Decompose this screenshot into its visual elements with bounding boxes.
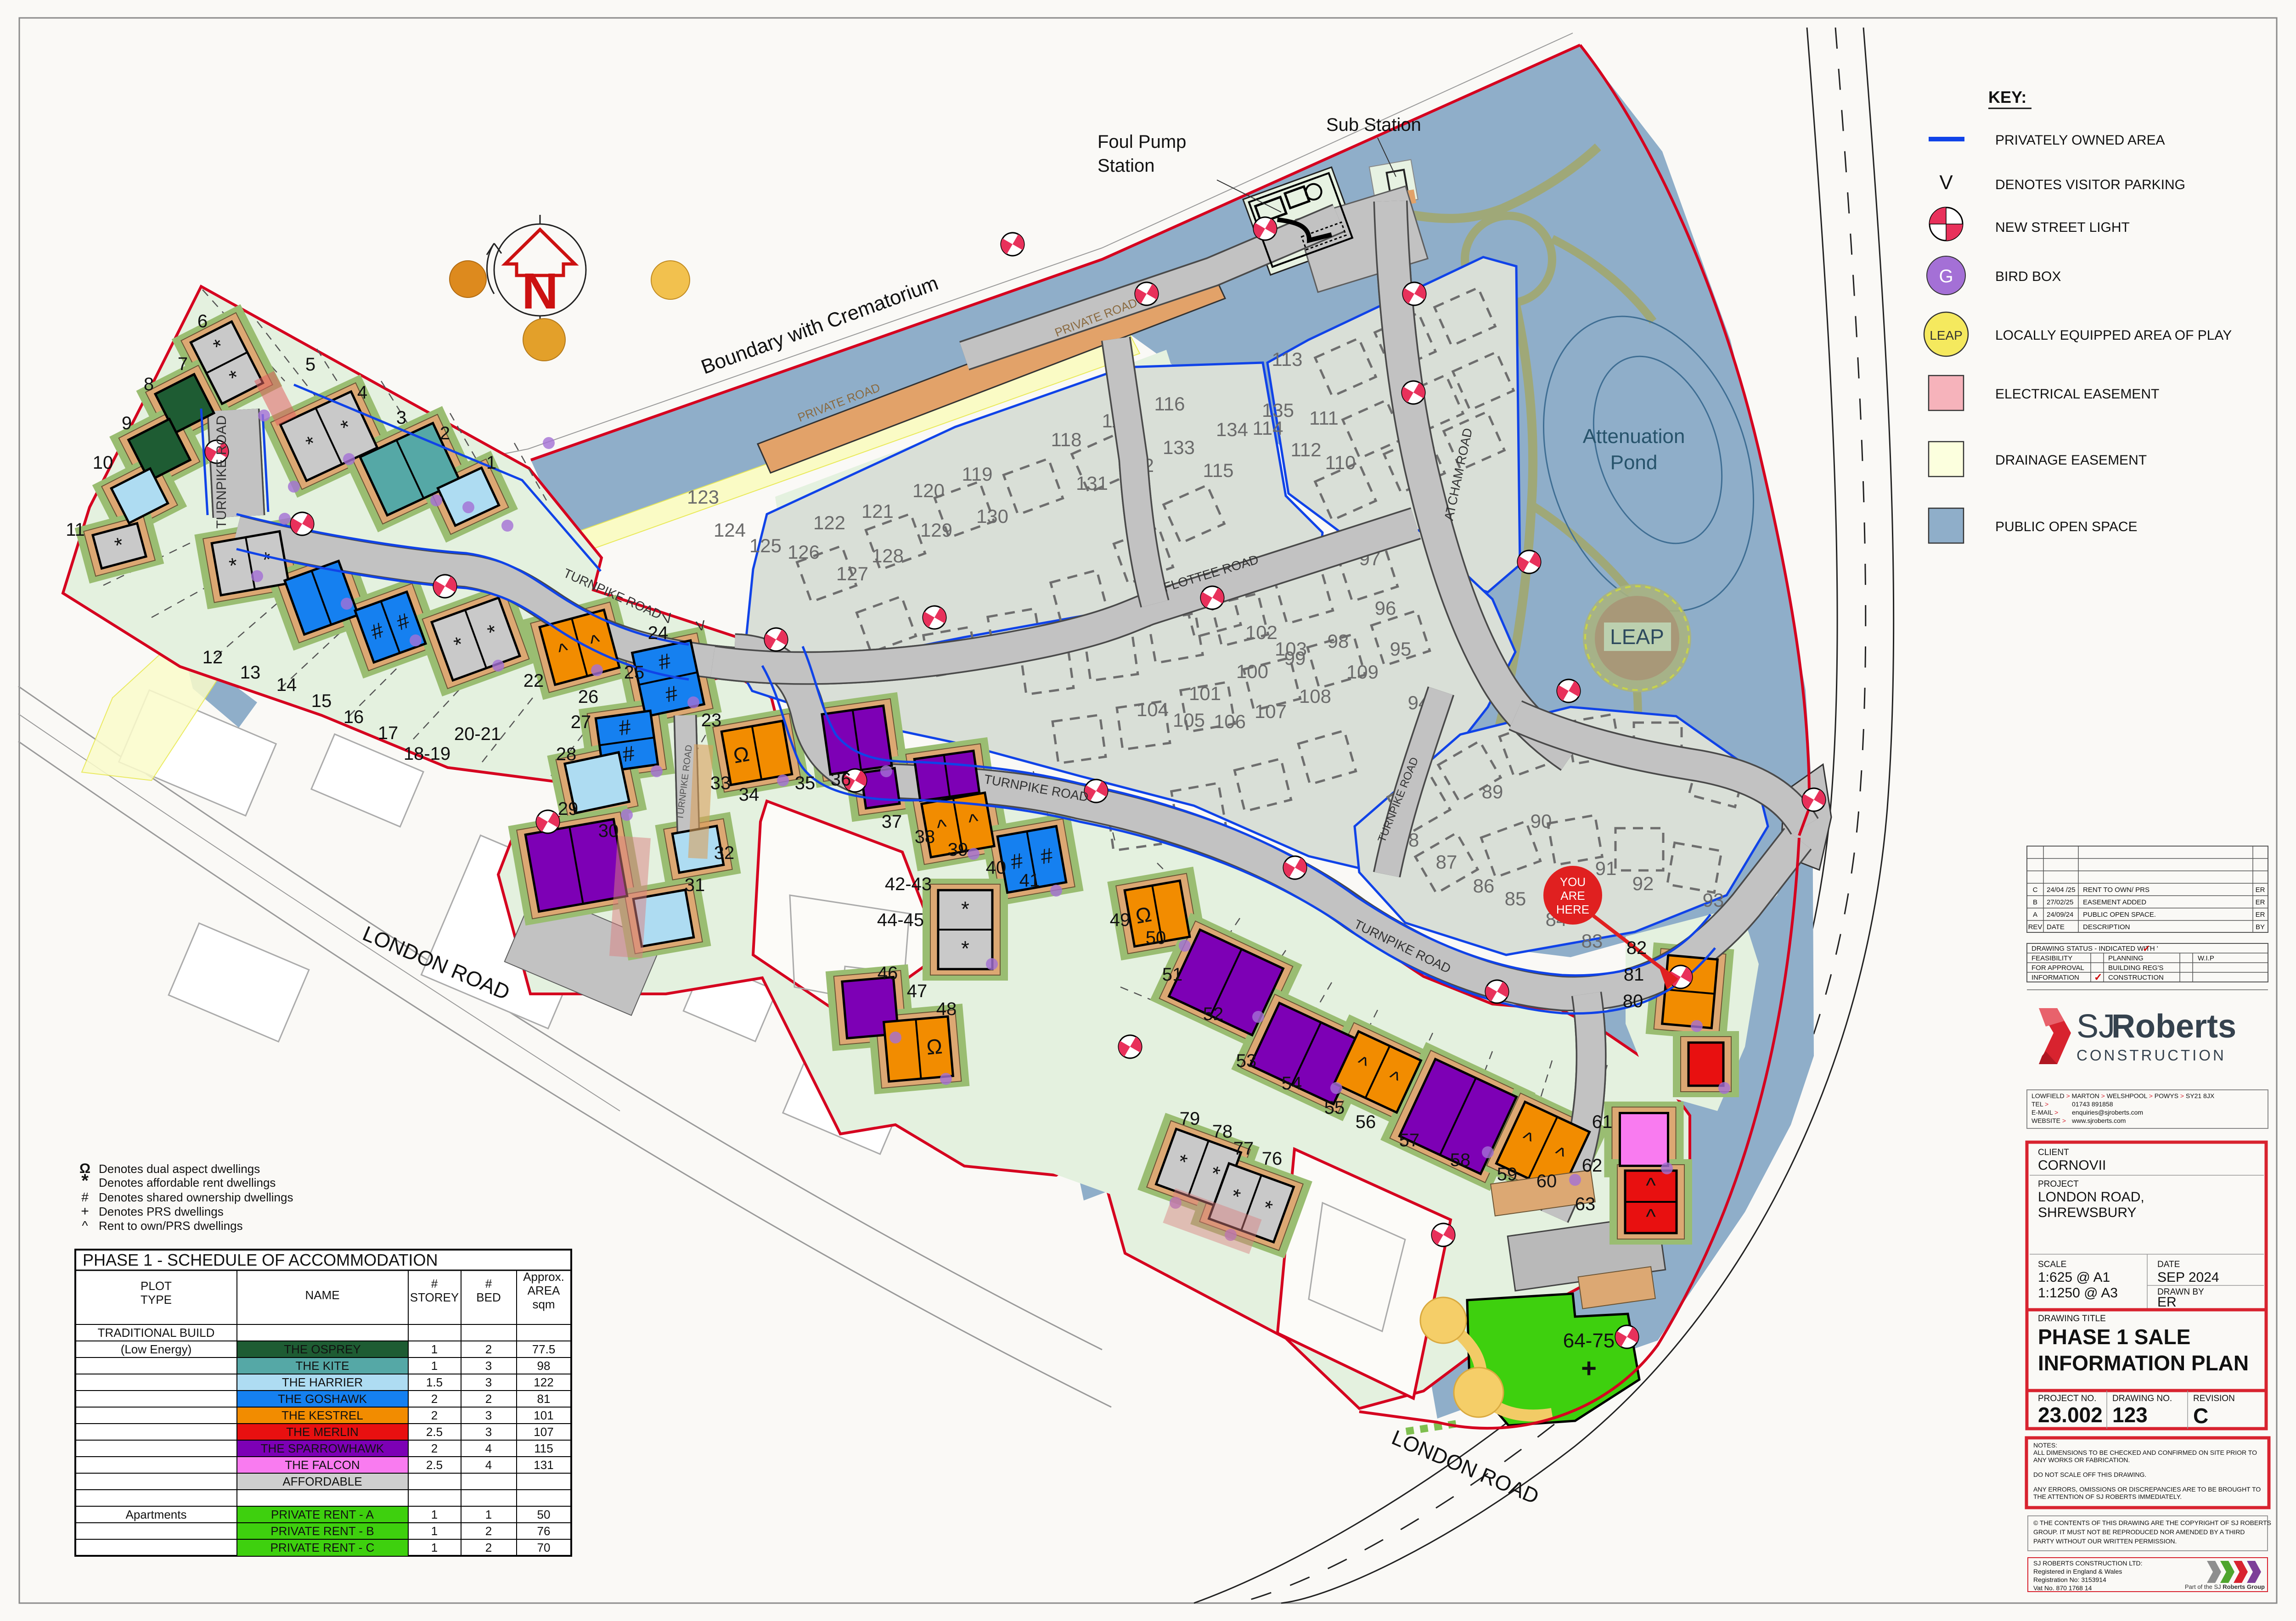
svg-text:enquiries@sjroberts.com: enquiries@sjroberts.com [2072,1109,2143,1116]
svg-text:50: 50 [537,1508,551,1521]
svg-text:01743 891858: 01743 891858 [2072,1100,2113,1108]
svg-text:9: 9 [122,413,132,433]
svg-text:47: 47 [907,981,928,1001]
svg-text:PRIVATE RENT - C: PRIVATE RENT - C [270,1541,375,1554]
svg-text:104: 104 [1137,699,1169,720]
svg-text:TEL >: TEL > [2032,1100,2048,1108]
svg-text:*: * [961,937,969,960]
svg-text:THE HARRIER: THE HARRIER [282,1375,363,1389]
svg-text:LOCALLY EQUIPPED AREA OF PLAY: LOCALLY EQUIPPED AREA OF PLAY [1995,328,2232,343]
svg-text:130: 130 [976,505,1008,527]
svg-text:ER: ER [2256,898,2265,906]
svg-text:102: 102 [1245,622,1277,643]
svg-text:^: ^ [1646,1173,1656,1197]
svg-text:8: 8 [144,374,154,394]
svg-text:3: 3 [396,408,406,428]
svg-text:Apartments: Apartments [126,1508,187,1521]
svg-text:EASEMENT ADDED: EASEMENT ADDED [2083,898,2146,906]
svg-text:AFFORDABLE: AFFORDABLE [282,1475,362,1488]
svg-text:2: 2 [485,1392,492,1406]
svg-text:NOTES:: NOTES: [2033,1442,2057,1449]
svg-text:2: 2 [485,1342,492,1356]
svg-text:124: 124 [714,519,746,541]
svg-text:CLIENT: CLIENT [2038,1148,2069,1157]
svg-text:24/09/24: 24/09/24 [2047,911,2073,919]
svg-text:REVISION: REVISION [2193,1394,2235,1403]
svg-text:Denotes dual aspect dwellings: Denotes dual aspect dwellings [99,1162,260,1176]
svg-text:PROJECT: PROJECT [2038,1179,2079,1189]
svg-text:23: 23 [701,710,722,730]
svg-text:RENT TO OWN/ PRS: RENT TO OWN/ PRS [2083,886,2150,894]
svg-text:Registered in England & Wales: Registered in England & Wales [2033,1568,2122,1575]
svg-text:70: 70 [537,1541,551,1554]
svg-text:22: 22 [523,671,544,691]
svg-text:52: 52 [1203,1004,1224,1024]
svg-text:109: 109 [1346,661,1379,683]
svg-text:92: 92 [1632,873,1654,894]
svg-text:© THE CONTENTS OF THIS DRAWING: © THE CONTENTS OF THIS DRAWING ARE THE C… [2033,1519,2271,1526]
svg-text:DENOTES VISITOR PARKING: DENOTES VISITOR PARKING [1995,177,2185,192]
svg-text:THE MERLIN: THE MERLIN [286,1425,358,1439]
svg-text:122: 122 [534,1375,553,1389]
svg-text:82: 82 [1626,938,1647,958]
svg-text:90: 90 [1531,810,1552,832]
svg-text:101: 101 [534,1408,553,1422]
svg-text:INFORMATION PLAN: INFORMATION PLAN [2038,1351,2249,1375]
svg-text:4: 4 [485,1442,492,1455]
svg-text:17: 17 [378,723,399,743]
svg-text:76: 76 [537,1524,551,1538]
svg-text:14: 14 [276,675,297,695]
svg-text:2.5: 2.5 [426,1425,443,1439]
svg-text:101: 101 [1189,683,1221,704]
svg-text:33: 33 [710,773,731,793]
svg-text:HERE: HERE [1556,903,1589,916]
svg-text:PLANNING: PLANNING [2108,954,2144,962]
svg-text:57: 57 [1399,1130,1420,1150]
svg-text:ANY WORKS OR FABRICATION.: ANY WORKS OR FABRICATION. [2033,1456,2130,1464]
svg-text:BIRD BOX: BIRD BOX [1995,269,2061,284]
svg-text:PARTY WITHOUT OUR WRITTEN PERM: PARTY WITHOUT OUR WRITTEN PERMISSION. [2033,1537,2177,1545]
svg-text:23.002: 23.002 [2038,1403,2103,1427]
svg-text:51: 51 [1162,965,1183,985]
svg-text:113: 113 [1272,348,1303,370]
svg-text:#: # [81,1190,89,1204]
svg-text:ANY ERRORS, OMISSIONS OR DISCR: ANY ERRORS, OMISSIONS OR DISCREPANCIES A… [2033,1486,2261,1493]
svg-text:77: 77 [1233,1139,1254,1159]
svg-text:24: 24 [648,623,669,643]
svg-text:95: 95 [1390,638,1412,660]
svg-text:110: 110 [1325,452,1356,473]
svg-text:PUBLIC OPEN SPACE: PUBLIC OPEN SPACE [1995,519,2138,534]
svg-text:Approx.: Approx. [523,1270,564,1284]
svg-text:55: 55 [1324,1098,1345,1118]
svg-text:129: 129 [920,519,952,541]
svg-text:^: ^ [1646,1205,1656,1228]
svg-text:LOWFIELD > MARTON > WELSHPOOL: LOWFIELD > MARTON > WELSHPOOL > POWYS > … [2032,1092,2215,1099]
svg-text:20-21: 20-21 [454,724,501,744]
svg-text:Attenuation: Attenuation [1583,425,1685,448]
svg-text:1: 1 [431,1524,438,1538]
svg-text:DESCRIPTION: DESCRIPTION [2083,923,2130,931]
svg-text:Ω: Ω [925,1034,943,1060]
svg-text:ARE: ARE [1560,889,1585,903]
svg-text:Roberts: Roberts [2111,1008,2236,1045]
svg-text:SHREWSBURY: SHREWSBURY [2038,1205,2136,1220]
svg-text:PRIVATE RENT - B: PRIVATE RENT - B [270,1524,374,1538]
svg-text:111: 111 [1309,407,1339,429]
svg-text:123: 123 [687,486,719,508]
svg-text:50: 50 [1146,928,1166,948]
svg-text:98: 98 [1328,630,1349,652]
svg-text:TURNPIKE ROAD: TURNPIKE ROAD [214,415,229,529]
svg-text:125: 125 [749,535,782,556]
svg-text:87: 87 [1436,851,1458,873]
svg-text:131: 131 [534,1458,553,1472]
svg-text:127: 127 [836,563,868,584]
svg-text:LEAP: LEAP [1610,625,1664,649]
svg-text:3: 3 [485,1425,492,1439]
svg-text:✓: ✓ [2143,944,2150,954]
svg-text:2: 2 [440,423,450,443]
svg-text:107: 107 [534,1425,553,1439]
svg-text:C: C [2193,1404,2208,1428]
svg-text:+: + [81,1204,89,1219]
svg-text:3: 3 [485,1359,492,1373]
svg-text:10: 10 [93,453,113,473]
svg-text:48: 48 [936,999,957,1019]
svg-text:85: 85 [1505,888,1526,909]
svg-text:15: 15 [311,691,332,711]
svg-text:60: 60 [1536,1171,1557,1191]
svg-text:2.5: 2.5 [426,1458,443,1472]
svg-text:108: 108 [1299,685,1331,707]
svg-text:53: 53 [1236,1051,1257,1071]
svg-text:123: 123 [2112,1403,2148,1427]
svg-text:107: 107 [1255,701,1287,722]
svg-text:ALL DIMENSIONS TO BE CHECKED A: ALL DIMENSIONS TO BE CHECKED AND CONFIRM… [2033,1449,2257,1456]
svg-text:121: 121 [861,500,894,522]
svg-text:1: 1 [431,1541,438,1554]
svg-text:STOREY: STOREY [410,1290,459,1304]
svg-text:35: 35 [795,773,816,793]
svg-text:PHASE 1 SALE: PHASE 1 SALE [2038,1325,2190,1349]
svg-text:1: 1 [486,453,496,473]
svg-text:2: 2 [431,1442,438,1455]
svg-text:PHASE 1 - SCHEDULE OF ACCOMMOD: PHASE 1 - SCHEDULE OF ACCOMMODATION [83,1251,438,1269]
svg-text:2: 2 [485,1524,492,1538]
svg-text:Denotes PRS dwellings: Denotes PRS dwellings [99,1205,224,1218]
svg-text:SJ ROBERTS CONSTRUCTION LTD:: SJ ROBERTS CONSTRUCTION LTD: [2033,1559,2143,1567]
svg-text:115: 115 [534,1442,553,1455]
svg-text:1: 1 [485,1508,492,1521]
svg-text:DRAWING TITLE: DRAWING TITLE [2038,1314,2106,1324]
svg-text:#: # [431,1277,438,1290]
svg-text:Pond: Pond [1610,451,1658,474]
svg-text:GROUP. IT MUST NOT BE REPRODUC: GROUP. IT MUST NOT BE REPRODUCED NOR AME… [2033,1528,2245,1536]
svg-text:+: + [1581,1353,1597,1383]
svg-text:BY: BY [2256,923,2265,931]
svg-text:DO NOT SCALE OFF THIS DRAWING.: DO NOT SCALE OFF THIS DRAWING. [2033,1471,2146,1478]
svg-text:CORNOVII: CORNOVII [2038,1158,2106,1173]
svg-text:77.5: 77.5 [532,1342,556,1356]
svg-text:SJ: SJ [2077,1008,2115,1045]
svg-text:INFORMATION: INFORMATION [2032,974,2079,982]
svg-text:FEASIBILITY: FEASIBILITY [2032,954,2072,962]
svg-text:131: 131 [1076,472,1108,494]
svg-text:^: ^ [82,1218,88,1233]
svg-text:Foul Pump: Foul Pump [1097,132,1186,152]
svg-text:91: 91 [1595,858,1617,879]
svg-text:39: 39 [948,840,968,860]
svg-text:40: 40 [986,858,1007,878]
svg-text:7: 7 [178,354,188,374]
svg-text:Registration No: 3153914: Registration No: 3153914 [2033,1576,2106,1583]
svg-text:2: 2 [431,1392,438,1406]
svg-text:THE OSPREY: THE OSPREY [284,1342,361,1356]
svg-text:81: 81 [1624,965,1644,985]
svg-text:6: 6 [197,311,208,331]
svg-text:49: 49 [1110,910,1131,930]
svg-text:16: 16 [343,707,364,727]
svg-text:THE GOSHAWK: THE GOSHAWK [278,1392,367,1406]
svg-text:118: 118 [1051,429,1082,450]
svg-text:Denotes shared ownership dwell: Denotes shared ownership dwellings [99,1190,293,1204]
svg-text:ER: ER [2256,886,2265,894]
svg-text:119: 119 [962,463,993,485]
svg-text:63: 63 [1575,1194,1596,1214]
svg-text:24/04 /25: 24/04 /25 [2047,886,2076,894]
svg-text:64-75: 64-75 [1563,1329,1615,1352]
svg-text:LEAP: LEAP [1930,328,1963,342]
svg-text:G: G [1939,266,1953,286]
svg-text:DRAWING STATUS - INDICATED WIT: DRAWING STATUS - INDICATED WITH ' [2032,945,2158,953]
svg-text:*: * [961,897,969,921]
svg-text:THE ATTENTION OF SJ ROBERTS IM: THE ATTENTION OF SJ ROBERTS IMMEDIATELY. [2033,1493,2182,1500]
svg-text:SEP 2024: SEP 2024 [2157,1270,2219,1285]
svg-text:44-45: 44-45 [877,910,924,930]
svg-text:YOU: YOU [1560,875,1586,889]
svg-text:106: 106 [1214,711,1246,732]
svg-text:120: 120 [912,480,945,501]
svg-text:ER: ER [2256,911,2265,919]
svg-text:Vat No. 870 1768 14: Vat No. 870 1768 14 [2033,1584,2092,1592]
svg-text:134: 134 [1216,419,1248,440]
svg-text:96: 96 [1375,597,1396,619]
svg-text:81: 81 [537,1392,551,1406]
svg-text:WEBSITE >: WEBSITE > [2032,1117,2066,1124]
svg-text:46: 46 [878,963,898,983]
svg-text:PROJECT NO.: PROJECT NO. [2038,1394,2096,1403]
svg-text:ELECTRICAL EASEMENT: ELECTRICAL EASEMENT [1995,387,2159,402]
svg-text:38: 38 [915,827,935,847]
svg-text:CONSTRUCTION: CONSTRUCTION [2108,974,2164,982]
svg-text:2: 2 [431,1408,438,1422]
svg-text:98: 98 [537,1359,551,1373]
svg-text:36: 36 [831,769,851,790]
svg-text:61: 61 [1592,1112,1613,1132]
svg-text:115: 115 [1203,460,1234,481]
svg-text:#: # [485,1277,492,1290]
svg-text:112: 112 [1291,439,1322,460]
svg-text:(Low Energy): (Low Energy) [121,1342,192,1356]
svg-text:1:625 @ A1: 1:625 @ A1 [2038,1270,2110,1285]
svg-text:FOR APPROVAL: FOR APPROVAL [2032,964,2084,972]
svg-text:AREA: AREA [528,1284,560,1297]
svg-text:31: 31 [685,875,705,895]
svg-text:www.sjroberts.com: www.sjroberts.com [2071,1117,2126,1124]
svg-text:26: 26 [578,687,599,707]
svg-text:2: 2 [485,1541,492,1554]
svg-text:58: 58 [1450,1150,1471,1170]
svg-text:A: A [2033,911,2037,919]
svg-text:W.I.P: W.I.P [2198,954,2214,962]
svg-text:THE FALCON: THE FALCON [285,1458,360,1472]
svg-text:N: N [522,263,558,320]
svg-text:100: 100 [1236,661,1268,682]
svg-text:133: 133 [1163,437,1195,458]
svg-text:E-MAIL >: E-MAIL > [2032,1109,2058,1116]
svg-text:V: V [1939,171,1953,194]
svg-text:56: 56 [1356,1112,1376,1132]
svg-text:86: 86 [1473,875,1495,897]
svg-text:sqm: sqm [532,1297,555,1311]
svg-text:PLOT: PLOT [141,1279,172,1293]
svg-text:THE SPARROWHAWK: THE SPARROWHAWK [261,1442,384,1455]
svg-text:CONSTRUCTION: CONSTRUCTION [2077,1047,2226,1064]
svg-text:LONDON ROAD,: LONDON ROAD, [2038,1189,2144,1205]
svg-text:42-43: 42-43 [885,874,932,894]
svg-text:THE KITE: THE KITE [295,1359,349,1373]
svg-text:NEW STREET LIGHT: NEW STREET LIGHT [1995,220,2130,235]
svg-text:76: 76 [1262,1149,1283,1169]
svg-text:37: 37 [882,812,902,832]
svg-text:Denotes affordable rent dwelli: Denotes affordable rent dwellings [99,1176,276,1189]
svg-text:79: 79 [1180,1109,1200,1129]
svg-text:1.5: 1.5 [426,1375,443,1389]
svg-text:128: 128 [872,545,904,567]
svg-text:SCALE: SCALE [2038,1260,2066,1269]
svg-text:126: 126 [788,541,820,563]
svg-text:NAME: NAME [305,1288,339,1302]
svg-text:18-19: 18-19 [404,744,450,764]
svg-text:41: 41 [1019,870,1040,891]
svg-text:25: 25 [624,662,645,683]
svg-text:✓: ✓ [2094,971,2102,983]
svg-text:122: 122 [813,512,845,533]
svg-text:REV: REV [2028,923,2043,931]
svg-text:32: 32 [714,843,735,863]
svg-text:13: 13 [240,662,261,683]
svg-text:1: 1 [431,1359,438,1373]
svg-text:C: C [2033,886,2038,894]
svg-text:': ' [2150,945,2151,953]
svg-text:TYPE: TYPE [141,1293,172,1307]
svg-text:11: 11 [66,520,85,540]
svg-text:4: 4 [485,1458,492,1472]
svg-text:135: 135 [1262,399,1294,421]
svg-text:54: 54 [1282,1073,1302,1094]
svg-text:29: 29 [558,799,579,819]
svg-text:THE KESTREL: THE KESTREL [281,1408,363,1422]
svg-text:PRIVATELY OWNED AREA: PRIVATELY OWNED AREA [1995,133,2165,148]
svg-text:83: 83 [1581,930,1603,952]
svg-text:BED: BED [476,1290,501,1304]
svg-text:1: 1 [431,1342,438,1356]
svg-text:59: 59 [1497,1164,1518,1184]
svg-text:DRAWING NO.: DRAWING NO. [2112,1394,2172,1403]
svg-text:5: 5 [305,354,315,375]
svg-text:3: 3 [485,1375,492,1389]
svg-text:27/02/25: 27/02/25 [2047,898,2073,906]
svg-text:*: * [81,1171,89,1191]
svg-text:28: 28 [556,744,577,764]
svg-text:4: 4 [357,382,367,403]
svg-text:105: 105 [1173,709,1205,731]
svg-text:Sub Station: Sub Station [1326,115,1421,135]
svg-text:1: 1 [431,1508,438,1521]
svg-text:PRIVATE RENT - A: PRIVATE RENT - A [271,1508,374,1521]
svg-text:27: 27 [571,712,591,732]
svg-text:DATE: DATE [2047,923,2065,931]
svg-text:DRAINAGE EASEMENT: DRAINAGE EASEMENT [1995,453,2147,468]
svg-text:BUILDING REG'S: BUILDING REG'S [2108,964,2163,972]
svg-text:B: B [2033,898,2037,906]
svg-text:DATE: DATE [2157,1260,2180,1269]
svg-text:99: 99 [1284,647,1306,669]
svg-text:62: 62 [1582,1155,1603,1176]
svg-text:3: 3 [485,1408,492,1422]
svg-text:Part of the SJ Roberts Group: Part of the SJ Roberts Group [2185,1583,2265,1590]
svg-text:12: 12 [203,647,223,667]
svg-text:116: 116 [1154,393,1185,415]
svg-text:TRADITIONAL BUILD: TRADITIONAL BUILD [98,1326,215,1340]
svg-text:30: 30 [598,821,619,841]
svg-text:ER: ER [2157,1295,2177,1310]
svg-text:34: 34 [739,785,760,805]
svg-text:89: 89 [1482,781,1503,802]
svg-text:KEY:: KEY: [1988,88,2026,107]
svg-text:80: 80 [1623,991,1643,1011]
svg-text:PUBLIC OPEN SPACE.: PUBLIC OPEN SPACE. [2083,911,2156,919]
svg-text:78: 78 [1212,1122,1233,1142]
svg-text:1:1250 @ A3: 1:1250 @ A3 [2038,1285,2118,1301]
svg-text:Rent to own/PRS dwellings: Rent to own/PRS dwellings [99,1219,243,1233]
svg-text:Station: Station [1097,156,1155,176]
